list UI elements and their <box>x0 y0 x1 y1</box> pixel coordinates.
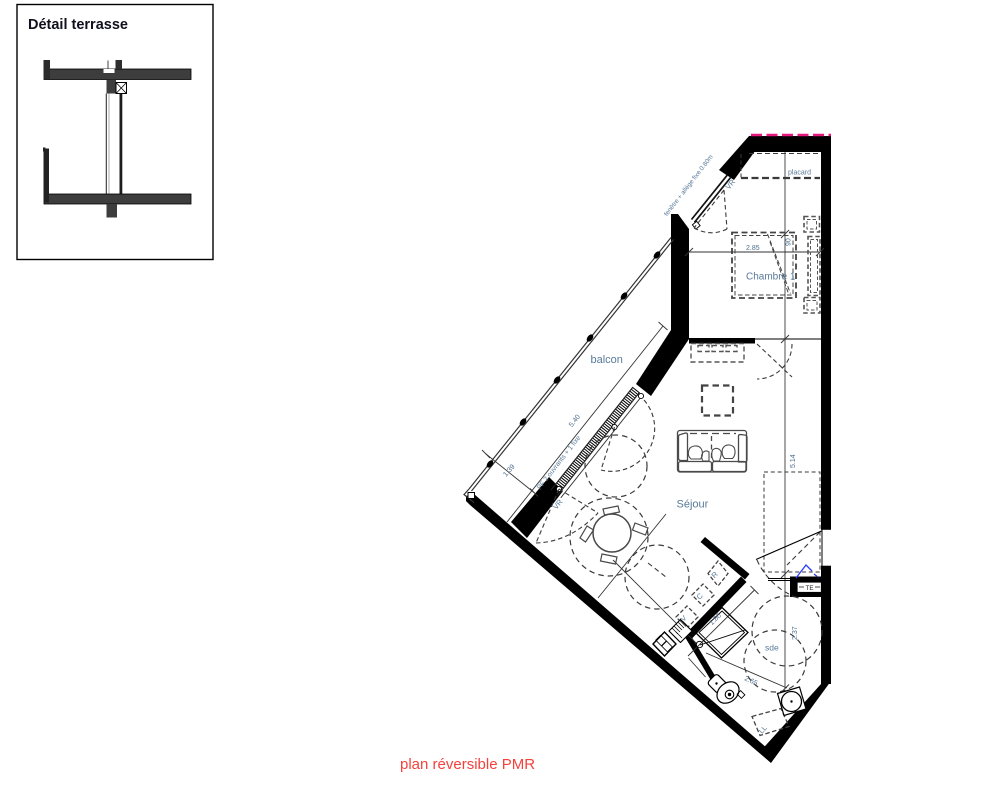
svg-text:TE: TE <box>806 585 814 592</box>
svg-text:placard: placard <box>788 170 811 177</box>
svg-text:2.37: 2.37 <box>792 626 799 640</box>
svg-text:Séjour: Séjour <box>677 499 709 511</box>
svg-text:90: 90 <box>786 238 793 246</box>
svg-text:balcon: balcon <box>591 354 623 366</box>
svg-text:plan réversible PMR: plan réversible PMR <box>400 756 535 773</box>
svg-text:5.14: 5.14 <box>790 454 797 468</box>
svg-text:Détail terrasse: Détail terrasse <box>28 17 128 33</box>
svg-text:2.85: 2.85 <box>746 245 760 252</box>
svg-text:Chambre 1: Chambre 1 <box>746 272 796 283</box>
svg-text:sde: sde <box>765 643 779 653</box>
